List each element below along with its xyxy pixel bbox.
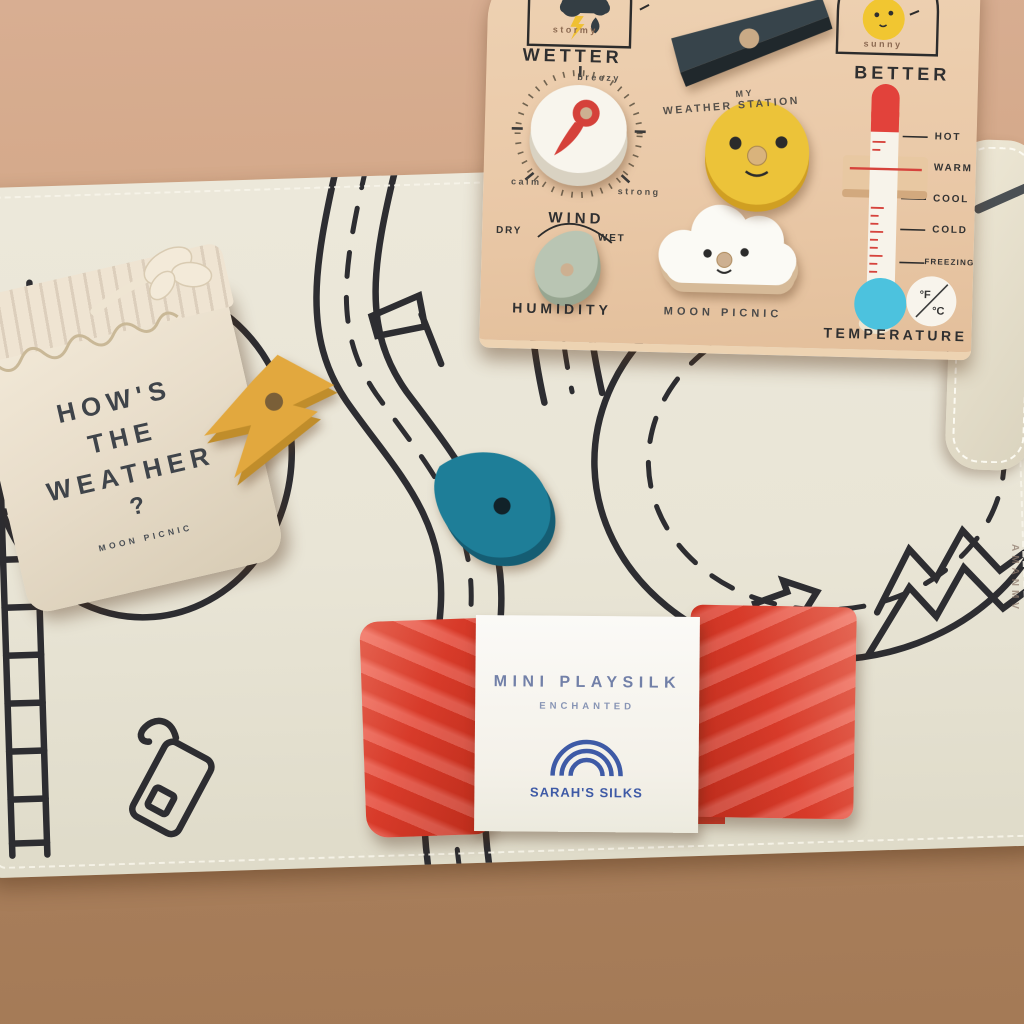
- wind-knob: [528, 84, 629, 188]
- humidity-drop-piece: [534, 230, 602, 307]
- cloud-piece: [658, 203, 800, 295]
- mat-embossed-brand: AMANMV: [1009, 544, 1020, 613]
- wind-calm: calm: [496, 176, 556, 188]
- temp-cool: COOL: [933, 193, 969, 205]
- wind-strong: strong: [604, 186, 674, 198]
- silk-right-bundle: [687, 605, 857, 820]
- photo-scene: AMANMV HOW'S THE WEATHER ? MOON PICNIC: [0, 0, 1024, 1024]
- weather-board: stormy WETTER sunny BETTER breezy calm s…: [479, 0, 981, 360]
- label-title: MINI PLAYSILK: [475, 673, 699, 693]
- zigzag-road-b: [866, 566, 1024, 655]
- label-subtitle: ENCHANTED: [475, 700, 699, 713]
- lightning-bolt-piece: [190, 342, 356, 490]
- silk-left-bundle: [359, 618, 490, 838]
- gas-pump-doodle: [105, 715, 220, 838]
- stormy-caption: stormy: [535, 24, 615, 36]
- better-heading: BETTER: [827, 62, 977, 87]
- playsilk: MINI PLAYSILK ENCHANTED SARAH'S SILKS: [355, 600, 863, 848]
- wind-breezy: breezy: [559, 72, 639, 84]
- temp-hot: HOT: [935, 131, 962, 143]
- gauge-pointer-piece: [670, 0, 833, 91]
- sunny-caption: sunny: [848, 38, 918, 50]
- unit-c: °C: [932, 305, 945, 317]
- unit-badge: [906, 276, 957, 327]
- sun-icon: [862, 0, 905, 41]
- temp-warm: WARM: [934, 162, 973, 174]
- rain-drop-piece: [425, 431, 578, 580]
- temp-freezing: FREEZING: [924, 257, 974, 267]
- silk-folds: [687, 605, 857, 820]
- sun-disc-piece: [704, 99, 811, 213]
- temp-cold: COLD: [932, 224, 968, 236]
- label-brand: SARAH'S SILKS: [474, 784, 698, 801]
- humidity-wet: WET: [598, 233, 626, 245]
- humidity-dry: DRY: [496, 225, 522, 237]
- wetter-heading: WETTER: [502, 44, 643, 69]
- unit-f: °F: [919, 289, 930, 301]
- silk-folds: [359, 618, 490, 838]
- playsilk-label: MINI PLAYSILK ENCHANTED SARAH'S SILKS: [474, 615, 700, 833]
- rainbow-icon: [543, 734, 631, 777]
- wind-heading: WIND: [516, 208, 636, 228]
- scale-leader-lines: [899, 137, 927, 264]
